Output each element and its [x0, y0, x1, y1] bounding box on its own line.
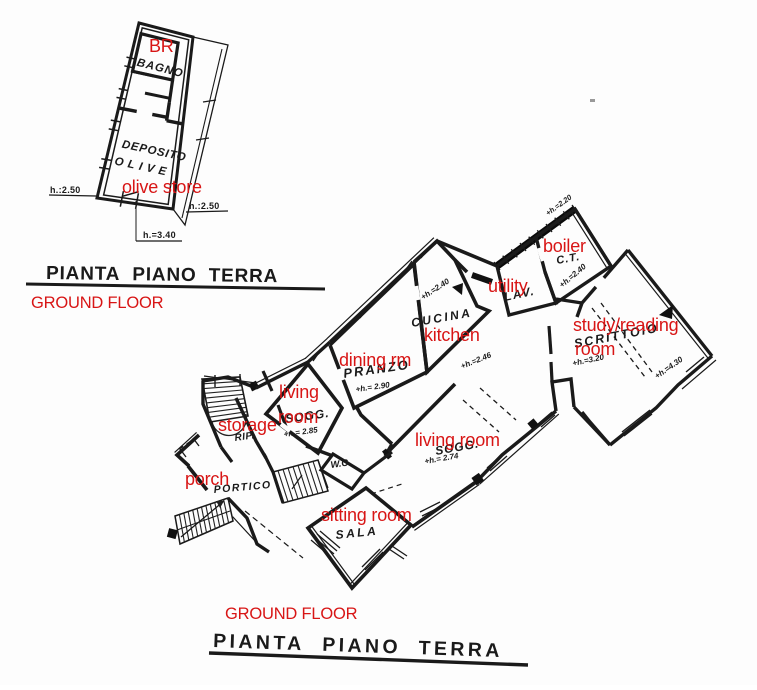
svg-text:sitting room: sitting room	[321, 505, 412, 525]
svg-text:living room: living room	[415, 430, 500, 450]
svg-text:dining rm: dining rm	[339, 350, 411, 370]
svg-text:room: room	[575, 339, 615, 359]
svg-text:boiler: boiler	[543, 236, 586, 256]
svg-text:living: living	[279, 382, 319, 402]
svg-text:utility: utility	[488, 276, 528, 296]
svg-text:study/reading: study/reading	[573, 315, 678, 335]
svg-text:GROUND FLOOR: GROUND FLOOR	[31, 294, 164, 312]
svg-text:BR: BR	[149, 36, 174, 56]
svg-text:GROUND FLOOR: GROUND FLOOR	[225, 605, 358, 623]
svg-text:kitchen: kitchen	[424, 325, 480, 345]
svg-text:h.:2.50: h.:2.50	[50, 185, 81, 195]
svg-text:h.=3.40: h.=3.40	[143, 230, 176, 240]
svg-text:olive store: olive store	[122, 177, 202, 197]
svg-text:h.:2.50: h.:2.50	[189, 201, 220, 211]
svg-text:storage: storage	[218, 415, 277, 435]
svg-text:porch: porch	[185, 469, 229, 489]
